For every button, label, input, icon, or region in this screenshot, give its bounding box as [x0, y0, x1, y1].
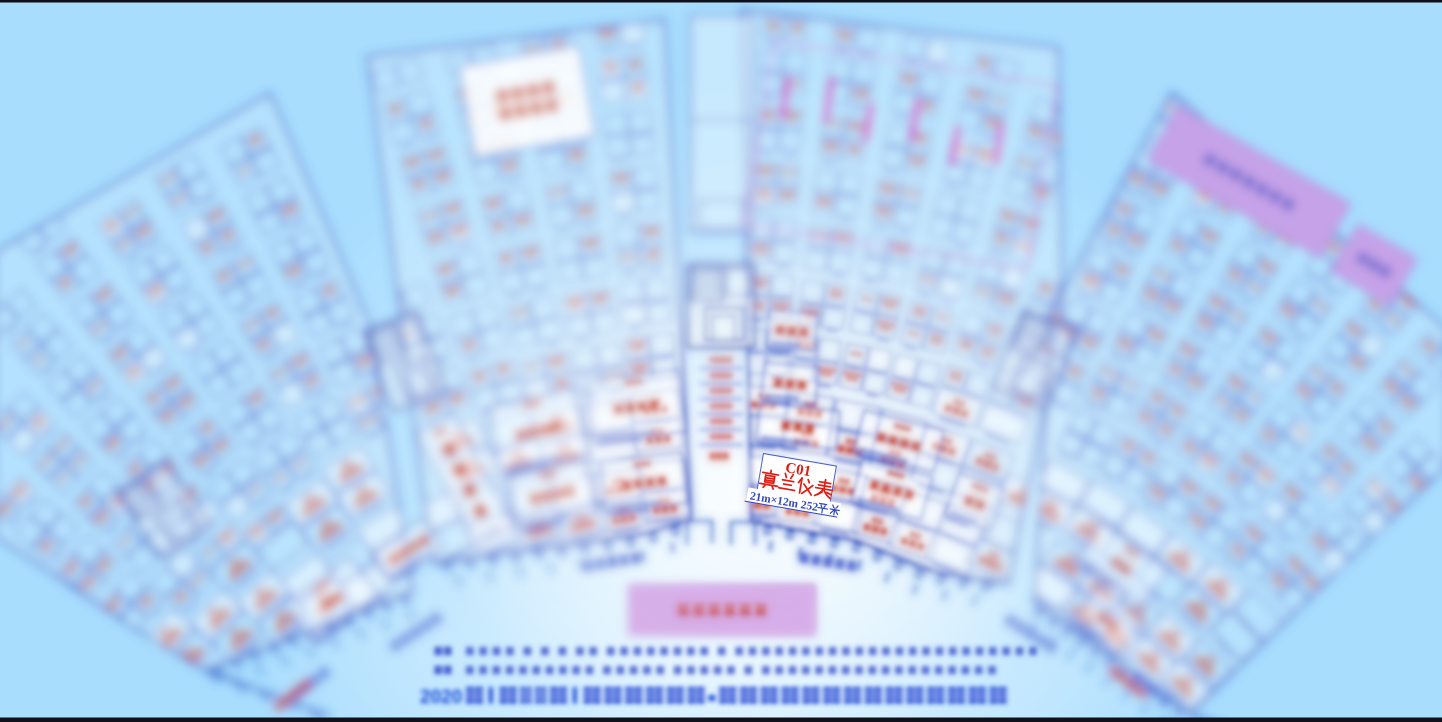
- svg-text:2020: 2020: [420, 687, 462, 708]
